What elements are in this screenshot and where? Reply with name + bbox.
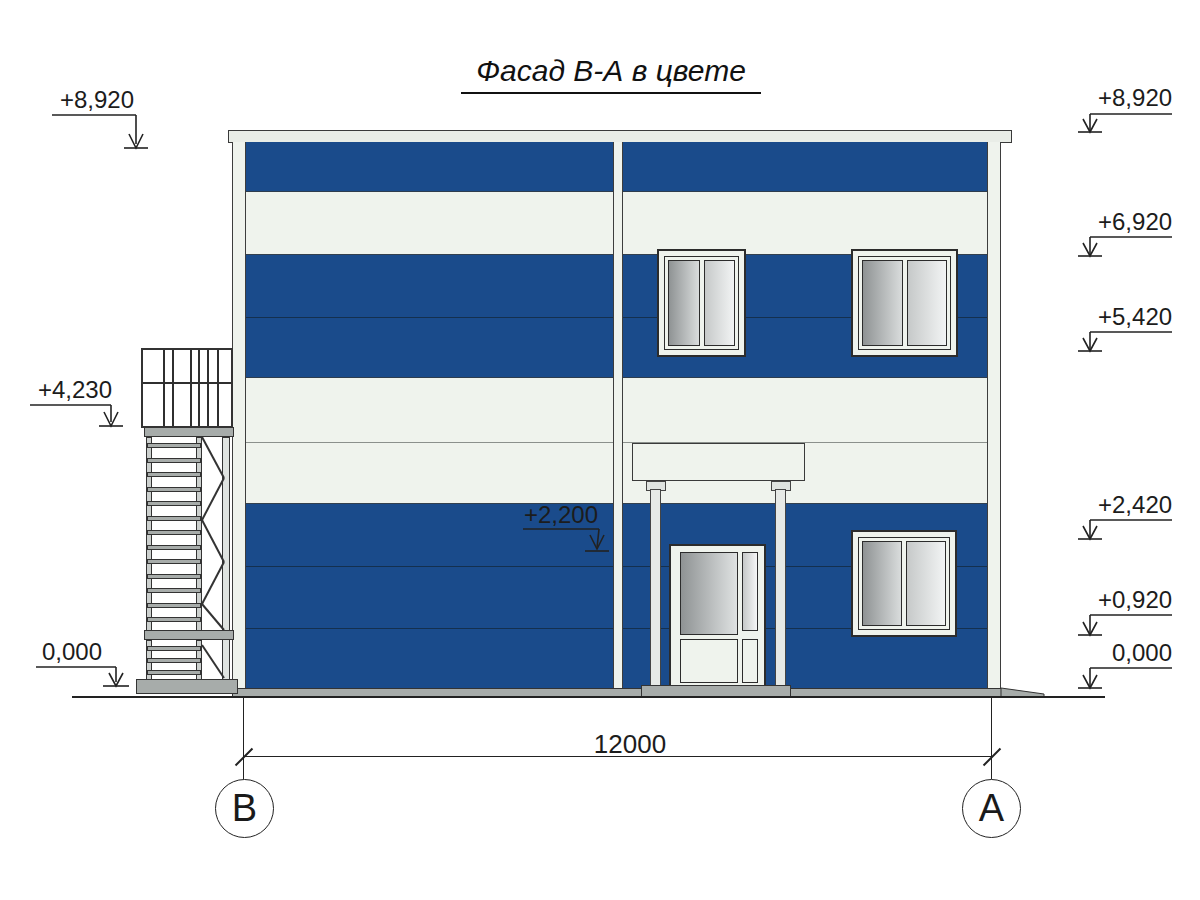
- level-arrow-icon: [50, 110, 156, 152]
- dimension-value: 12000: [570, 729, 690, 760]
- level-arrow-icon: [1078, 109, 1174, 139]
- ladder-rung: [147, 646, 201, 651]
- axis-letter: А: [979, 787, 1004, 830]
- axis-bubble-left: В: [215, 779, 274, 838]
- level-arrow-icon: [1078, 232, 1174, 262]
- extension-line-left: [243, 697, 244, 779]
- level-arrow-icon: [28, 400, 134, 432]
- ladder-rung: [147, 658, 201, 663]
- axis-bubble-right: А: [962, 779, 1021, 838]
- level-arrow-icon: [34, 662, 140, 692]
- ladder-platform-lower: [144, 630, 234, 640]
- elevation-label: +8,920: [1098, 84, 1172, 112]
- facade-drawing: Фасад В-А в цвете: [0, 0, 1200, 900]
- level-arrow-icon: [1078, 610, 1174, 642]
- axis-letter: В: [232, 787, 257, 830]
- extension-line-right: [991, 697, 992, 779]
- level-arrow-icon: [521, 524, 613, 556]
- level-arrow-icon: [1078, 327, 1174, 357]
- ladder-base-pad: [136, 679, 238, 694]
- ladder-braces: [0, 0, 1200, 900]
- level-arrow-icon: [1078, 515, 1174, 545]
- level-arrow-icon: [1078, 663, 1174, 695]
- ladder-rung: [147, 670, 201, 675]
